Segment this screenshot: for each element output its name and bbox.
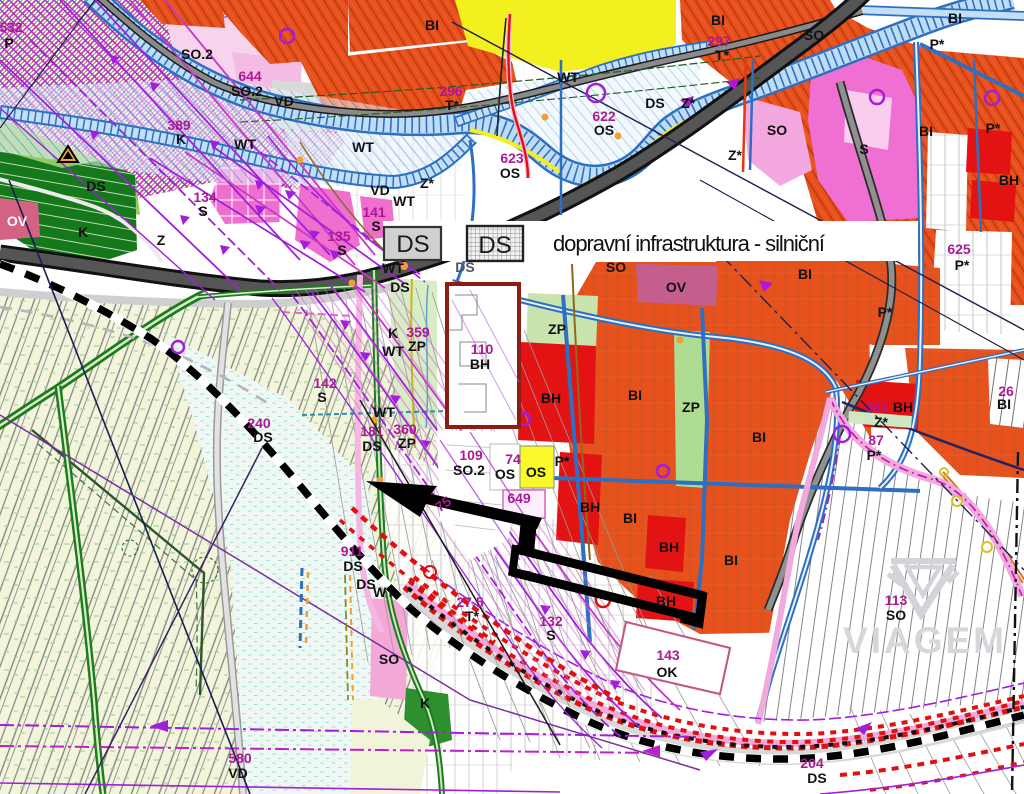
svg-text:K: K	[388, 325, 398, 341]
svg-text:T*: T*	[445, 97, 460, 113]
svg-text:134: 134	[193, 189, 217, 205]
svg-text:DS: DS	[645, 95, 664, 111]
svg-text:SO.2: SO.2	[181, 46, 213, 62]
svg-text:623: 623	[500, 150, 524, 166]
svg-text:BI: BI	[948, 10, 962, 26]
svg-text:Z*: Z*	[681, 95, 696, 111]
svg-text:T*: T*	[715, 47, 730, 63]
svg-text:Z*: Z*	[420, 175, 435, 191]
svg-text:P*: P*	[986, 120, 1001, 136]
svg-text:WT: WT	[373, 404, 395, 420]
svg-text:WT: WT	[557, 69, 579, 85]
svg-text:P*: P*	[955, 257, 970, 273]
svg-text:BH: BH	[470, 356, 490, 372]
svg-text:Z: Z	[157, 232, 166, 248]
svg-text:P: P	[4, 35, 13, 51]
svg-text:DS: DS	[253, 429, 272, 445]
svg-text:Z*: Z*	[728, 147, 743, 163]
svg-text:DS: DS	[390, 279, 409, 295]
svg-text:622: 622	[592, 108, 616, 124]
svg-text:BI: BI	[798, 266, 812, 282]
svg-text:T*: T*	[465, 608, 480, 624]
svg-text:dopravní infrastruktura - siln: dopravní infrastruktura - silniční	[553, 231, 825, 256]
svg-text:181: 181	[360, 423, 384, 439]
svg-text:S: S	[337, 242, 346, 258]
svg-text:110: 110	[471, 341, 494, 357]
svg-text:VD: VD	[274, 93, 293, 109]
svg-text:WT: WT	[382, 343, 404, 359]
svg-text:DS: DS	[343, 558, 362, 574]
svg-text:S: S	[198, 203, 207, 219]
svg-text:OV: OV	[7, 213, 28, 229]
svg-text:S: S	[371, 218, 380, 234]
svg-text:SO: SO	[886, 607, 906, 623]
svg-text:BI: BI	[919, 123, 933, 139]
svg-text:532: 532	[0, 19, 23, 35]
svg-text:OS: OS	[500, 165, 520, 181]
svg-text:109: 109	[459, 447, 483, 463]
svg-text:K: K	[78, 224, 88, 240]
svg-text:360: 360	[393, 421, 417, 437]
svg-text:BH: BH	[541, 390, 561, 406]
svg-text:389: 389	[167, 117, 191, 133]
svg-text:SO: SO	[379, 651, 399, 667]
svg-text:143: 143	[656, 647, 680, 663]
svg-text:VD: VD	[228, 765, 247, 781]
svg-text:132: 132	[539, 613, 563, 629]
svg-text:BI: BI	[623, 510, 637, 526]
svg-text:296: 296	[439, 83, 463, 99]
svg-text:OK: OK	[657, 664, 678, 680]
svg-text:BH: BH	[580, 499, 600, 515]
svg-text:WT: WT	[234, 136, 256, 152]
svg-text:DS: DS	[455, 259, 474, 275]
svg-text:S: S	[546, 627, 555, 643]
svg-text:27,5: 27,5	[456, 594, 483, 610]
svg-text:113: 113	[885, 592, 908, 608]
svg-text:SO: SO	[767, 122, 787, 138]
svg-text:DS: DS	[807, 770, 826, 786]
svg-text:OS: OS	[594, 122, 614, 138]
svg-text:BH: BH	[656, 593, 676, 609]
svg-text:DS: DS	[86, 178, 105, 194]
svg-text:OS: OS	[526, 464, 546, 480]
svg-text:S: S	[859, 141, 868, 157]
svg-text:OS: OS	[495, 466, 515, 482]
svg-text:ZP: ZP	[548, 321, 566, 337]
svg-text:74: 74	[505, 451, 521, 467]
svg-text:DS: DS	[478, 232, 511, 259]
svg-text:911: 911	[341, 543, 364, 559]
svg-text:BI: BI	[752, 429, 766, 445]
svg-text:BI: BI	[724, 552, 738, 568]
svg-text:580: 580	[228, 750, 252, 766]
svg-text:SO: SO	[606, 259, 626, 275]
svg-text:625: 625	[947, 241, 971, 257]
svg-text:Z*: Z*	[874, 414, 889, 430]
svg-text:BI: BI	[425, 17, 439, 33]
svg-text:BI: BI	[711, 12, 725, 28]
svg-text:WT: WT	[373, 584, 395, 600]
svg-text:204: 204	[800, 755, 824, 771]
svg-text:BH: BH	[659, 539, 679, 555]
svg-text:142: 142	[313, 375, 337, 391]
svg-text:OV: OV	[666, 279, 687, 295]
svg-text:SO.2: SO.2	[231, 83, 263, 99]
svg-text:P*: P*	[867, 447, 882, 463]
svg-text:P*: P*	[930, 36, 945, 52]
svg-text:141: 141	[362, 204, 386, 220]
svg-text:S: S	[317, 389, 326, 405]
svg-text:135: 135	[327, 228, 351, 244]
svg-text:P*: P*	[878, 304, 893, 320]
svg-text:649: 649	[507, 490, 531, 506]
svg-text:K: K	[176, 131, 186, 147]
svg-text:87: 87	[868, 432, 884, 448]
svg-text:ZP: ZP	[408, 338, 426, 354]
svg-text:DS: DS	[362, 438, 381, 454]
svg-text:SO.2: SO.2	[453, 462, 485, 478]
svg-text:359: 359	[406, 324, 430, 340]
svg-text:ZP: ZP	[682, 399, 700, 415]
svg-text:644: 644	[238, 68, 262, 84]
svg-text:26: 26	[998, 383, 1014, 399]
svg-text:VD: VD	[370, 182, 389, 198]
svg-text:BH: BH	[999, 172, 1019, 188]
svg-text:SO: SO	[804, 27, 824, 43]
svg-text:240: 240	[247, 415, 271, 431]
svg-text:DS: DS	[396, 231, 429, 258]
svg-text:WT: WT	[382, 260, 404, 276]
svg-text:BH: BH	[893, 399, 913, 415]
svg-text:WT: WT	[352, 139, 374, 155]
svg-text:297: 297	[707, 33, 731, 49]
svg-text:ZP: ZP	[398, 435, 416, 451]
svg-text:P*: P*	[555, 453, 570, 469]
svg-text:VIAGEM: VIAGEM	[843, 620, 1007, 661]
svg-text:BI: BI	[628, 387, 642, 403]
svg-text:WT: WT	[393, 193, 415, 209]
svg-text:361: 361	[865, 399, 889, 415]
svg-text:K: K	[420, 695, 430, 711]
